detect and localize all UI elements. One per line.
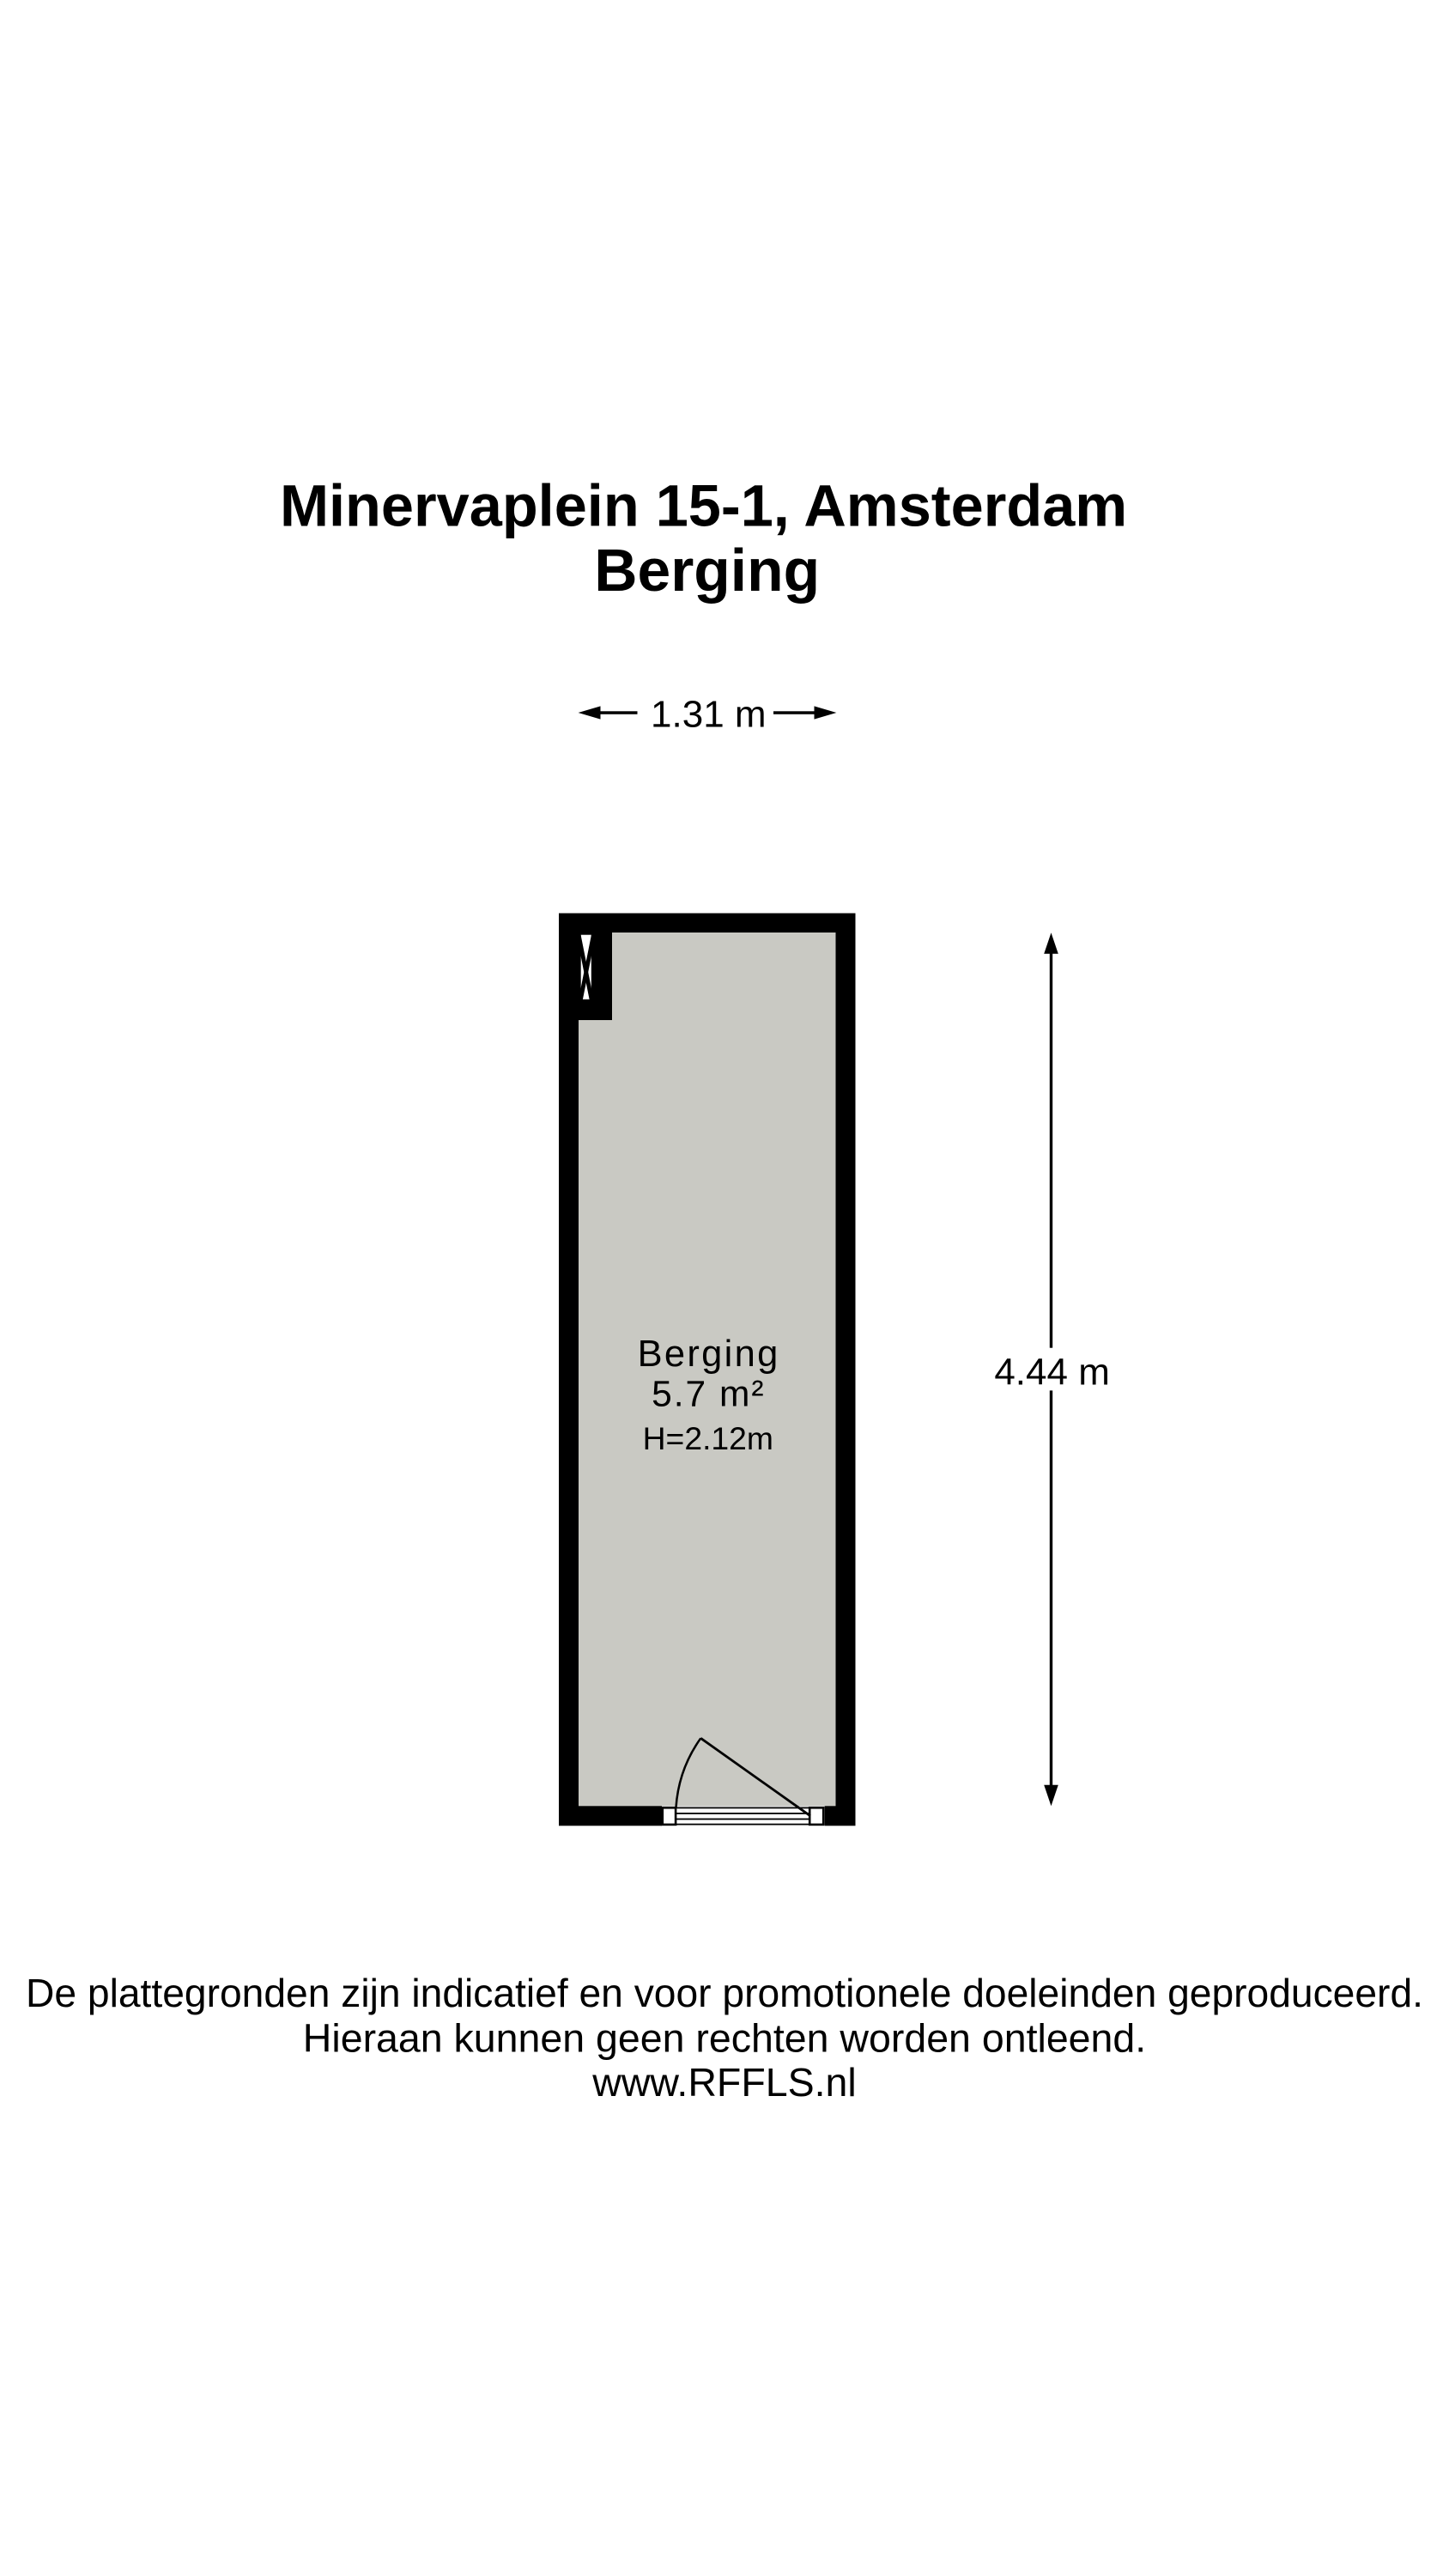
svg-text:Berging: Berging [594,537,820,604]
svg-text:Berging: Berging [638,1334,780,1375]
svg-text:www.RFFLS.nl: www.RFFLS.nl [591,2060,856,2105]
svg-text:De plattegronden zijn indicati: De plattegronden zijn indicatief en voor… [26,1971,1423,2015]
svg-text:Hieraan kunnen geen rechten wo: Hieraan kunnen geen rechten worden ontle… [303,2015,1146,2060]
svg-text:H=2.12m: H=2.12m [643,1420,773,1456]
svg-text:1.31 m: 1.31 m [651,693,767,735]
svg-text:5.7 m²: 5.7 m² [652,1374,765,1414]
svg-text:Minervaplein 15-1, Amsterdam: Minervaplein 15-1, Amsterdam [280,473,1127,539]
svg-text:4.44 m: 4.44 m [994,1352,1110,1394]
